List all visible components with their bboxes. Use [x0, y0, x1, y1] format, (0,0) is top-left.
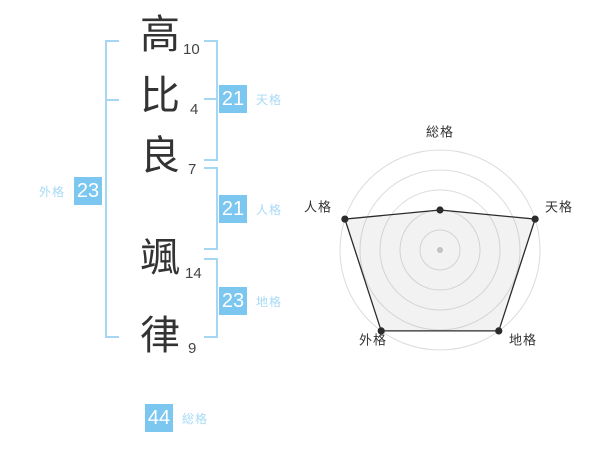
- name-char-2: 比: [140, 76, 180, 116]
- radar-vertex-dot: [532, 215, 539, 222]
- radar-vertex-dot: [495, 327, 502, 334]
- radar-polygon: [345, 210, 535, 331]
- radar-axis-label-3: 地格: [509, 330, 537, 349]
- stroke-count-4: 14: [185, 266, 202, 281]
- radar-chart: 総格天格地格外格人格: [295, 105, 595, 365]
- soukaku-item: 44 総格: [145, 404, 208, 432]
- soukaku-value-badge: 44: [145, 404, 173, 432]
- jinkaku-bracket: [204, 168, 217, 249]
- jinkaku-label: 人格: [256, 201, 282, 218]
- chikaku-bracket: [204, 259, 217, 337]
- tenkaku-value-badge: 21: [219, 85, 247, 113]
- jinkaku-item: 21 人格: [219, 195, 282, 223]
- gaikaku-label: 外格: [39, 183, 65, 200]
- tenkaku-item: 21 天格: [219, 85, 282, 113]
- stroke-count-2: 4: [190, 102, 198, 117]
- chikaku-value-badge: 23: [219, 287, 247, 315]
- name-fortune-panel: 高 比 良 颯 律 10 4 7 14 9 21 天格 21 人格 23 地格 …: [0, 0, 600, 470]
- chikaku-label: 地格: [256, 293, 282, 310]
- radar-axis-label-2: 天格: [545, 197, 573, 216]
- name-char-5: 律: [140, 316, 180, 356]
- radar-axis-label-1: 総格: [426, 122, 454, 141]
- gaikaku-bracket: [106, 41, 119, 337]
- tenkaku-label: 天格: [256, 91, 282, 108]
- stroke-count-3: 7: [188, 162, 196, 177]
- stroke-count-5: 9: [188, 341, 196, 356]
- soukaku-label: 総格: [182, 410, 208, 427]
- stroke-count-1: 10: [183, 42, 200, 57]
- name-char-3: 良: [140, 136, 180, 176]
- radar-vertex-dot: [436, 206, 443, 213]
- jinkaku-value-badge: 21: [219, 195, 247, 223]
- chikaku-item: 23 地格: [219, 287, 282, 315]
- radar-svg: [295, 105, 595, 365]
- radar-vertex-dot: [341, 215, 348, 222]
- gaikaku-value-badge: 23: [74, 177, 102, 205]
- gaikaku-item: 外格 23: [39, 177, 102, 205]
- radar-axis-label-4: 外格: [359, 330, 387, 349]
- name-char-4: 颯: [140, 238, 180, 278]
- radar-axis-label-5: 人格: [304, 197, 332, 216]
- name-char-1: 高: [140, 15, 180, 55]
- tenkaku-bracket: [204, 41, 217, 160]
